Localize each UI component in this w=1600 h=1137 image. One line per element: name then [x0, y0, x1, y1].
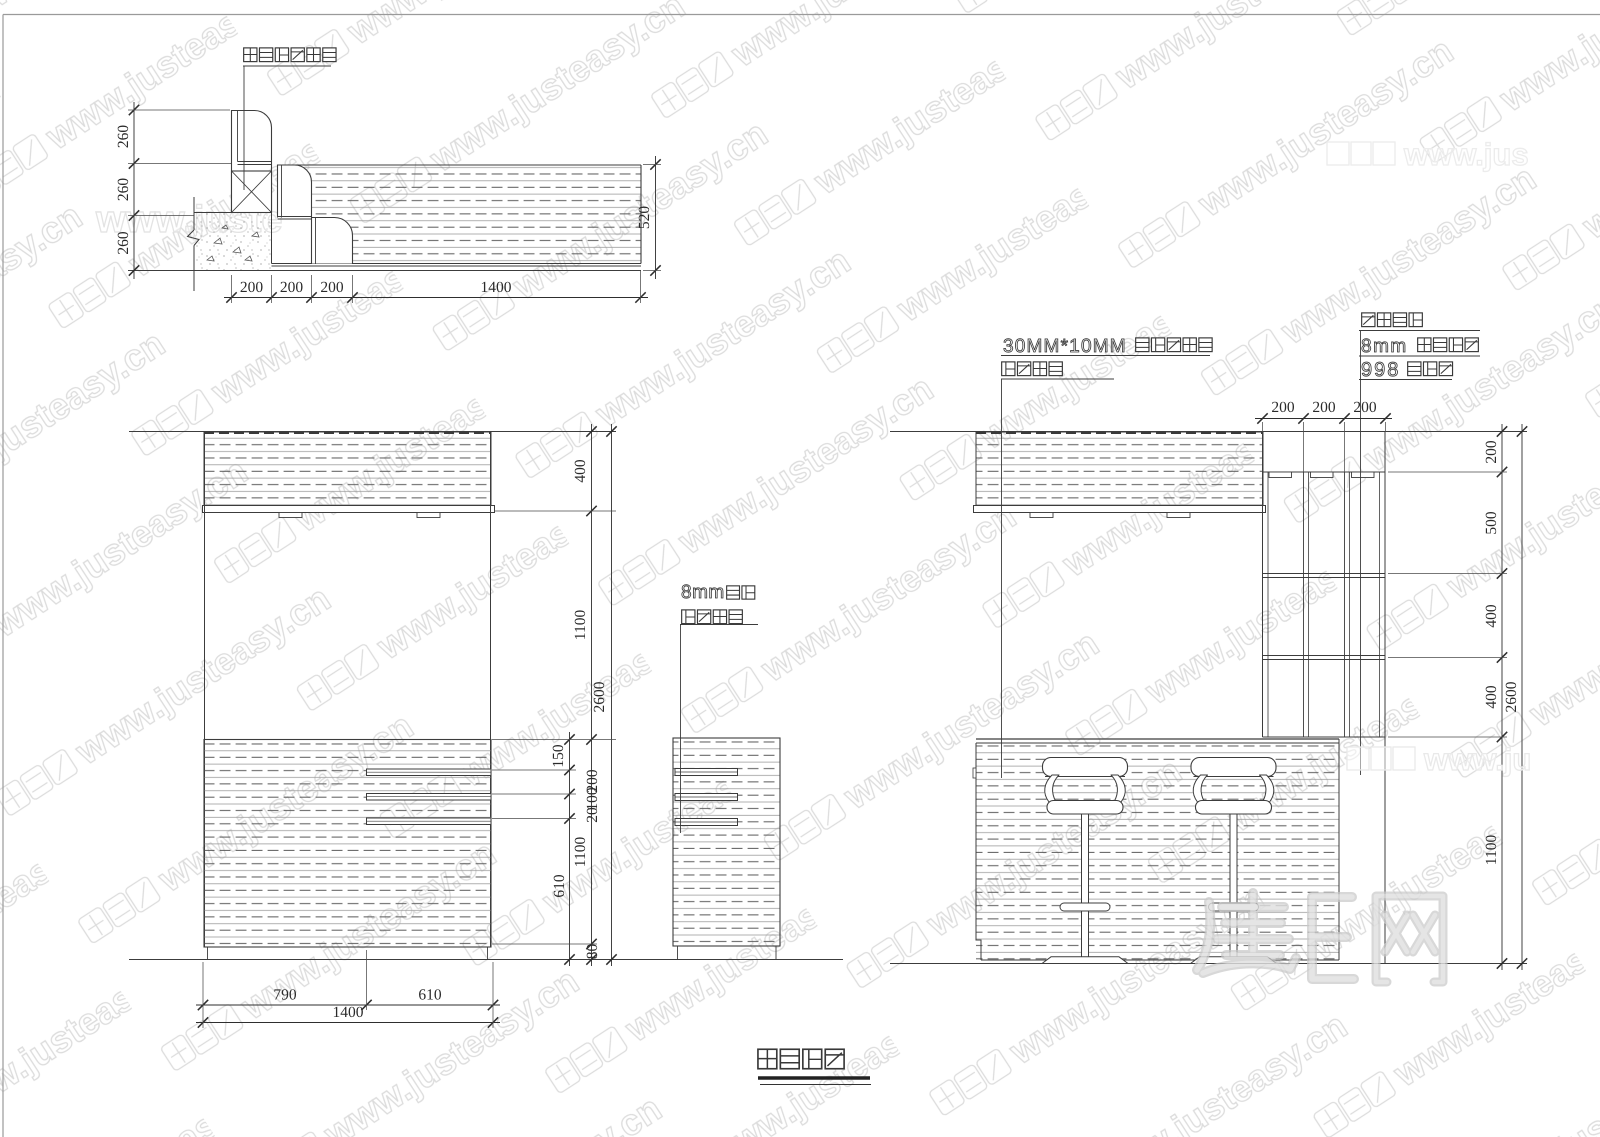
- svg-text:www.jus: www.jus: [1403, 137, 1529, 172]
- svg-text:260: 260: [115, 231, 132, 255]
- svg-text:200: 200: [320, 279, 344, 296]
- svg-text:80: 80: [584, 944, 601, 960]
- svg-text:200: 200: [1271, 399, 1295, 416]
- svg-text:200: 200: [1353, 399, 1377, 416]
- svg-text:998: 998: [1361, 359, 1400, 381]
- svg-text:www.ju: www.ju: [1423, 742, 1531, 777]
- svg-text:500: 500: [1483, 511, 1500, 535]
- svg-text:20: 20: [584, 807, 601, 823]
- svg-text:520: 520: [636, 206, 653, 230]
- svg-text:2600: 2600: [591, 681, 608, 712]
- svg-text:8mm: 8mm: [1361, 336, 1408, 357]
- svg-text:1100: 1100: [1483, 835, 1500, 866]
- svg-text:400: 400: [1483, 685, 1500, 709]
- svg-text:150: 150: [550, 744, 567, 768]
- svg-text:1100: 1100: [572, 837, 589, 868]
- svg-text:610: 610: [418, 987, 442, 1004]
- svg-text:2600: 2600: [1503, 681, 1520, 712]
- svg-text:1100: 1100: [572, 610, 589, 641]
- svg-text:1400: 1400: [333, 1004, 364, 1021]
- svg-text:790: 790: [273, 987, 297, 1004]
- svg-text:100: 100: [584, 787, 601, 811]
- svg-text:1400: 1400: [481, 279, 512, 296]
- svg-text:610: 610: [551, 874, 568, 898]
- svg-text:400: 400: [572, 459, 589, 483]
- svg-text:200: 200: [1483, 440, 1500, 464]
- svg-text:260: 260: [115, 178, 132, 202]
- svg-text:30MM*10MM: 30MM*10MM: [1003, 336, 1127, 357]
- svg-text:400: 400: [1483, 604, 1500, 628]
- svg-text:200: 200: [280, 279, 304, 296]
- svg-text:260: 260: [115, 125, 132, 149]
- svg-text:200: 200: [1312, 399, 1336, 416]
- svg-text:200: 200: [240, 279, 264, 296]
- svg-text:8mm: 8mm: [681, 582, 725, 603]
